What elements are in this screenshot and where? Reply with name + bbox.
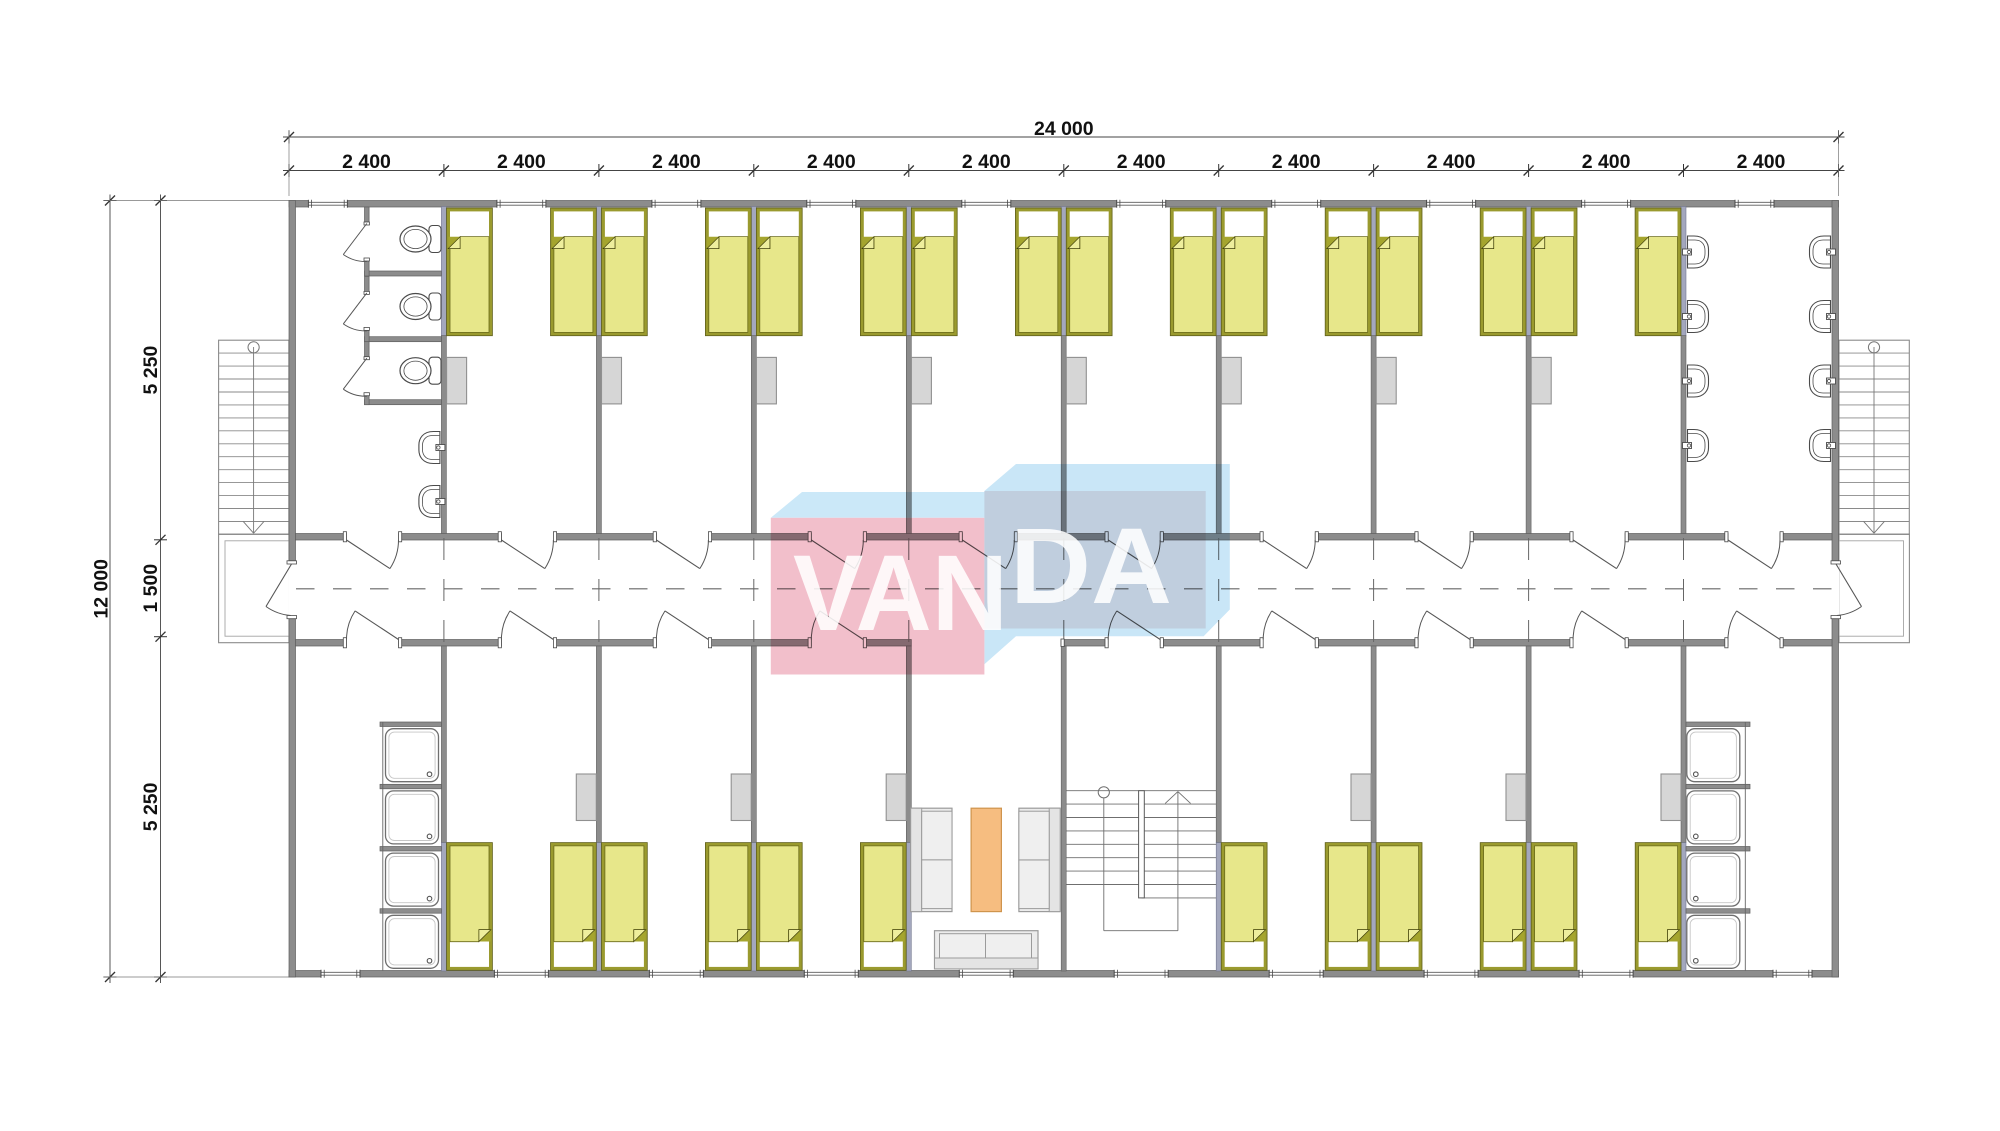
svg-text:12 000: 12 000: [91, 559, 113, 619]
svg-text:DA: DA: [1010, 505, 1172, 626]
svg-text:24 000: 24 000: [1034, 118, 1094, 140]
svg-text:2 400: 2 400: [652, 151, 701, 173]
svg-text:2 400: 2 400: [807, 151, 856, 173]
svg-text:2 400: 2 400: [1117, 151, 1166, 173]
svg-text:2 400: 2 400: [1737, 151, 1786, 173]
svg-text:2 400: 2 400: [1427, 151, 1476, 173]
svg-text:VAN: VAN: [793, 532, 1008, 653]
svg-text:2 400: 2 400: [342, 151, 391, 173]
svg-text:2 400: 2 400: [1272, 151, 1321, 173]
svg-text:2 400: 2 400: [1582, 151, 1631, 173]
svg-text:2 400: 2 400: [962, 151, 1011, 173]
svg-text:1 500: 1 500: [140, 564, 162, 613]
svg-text:5 250: 5 250: [140, 346, 162, 395]
svg-text:2 400: 2 400: [497, 151, 546, 173]
svg-text:5 250: 5 250: [140, 782, 162, 831]
